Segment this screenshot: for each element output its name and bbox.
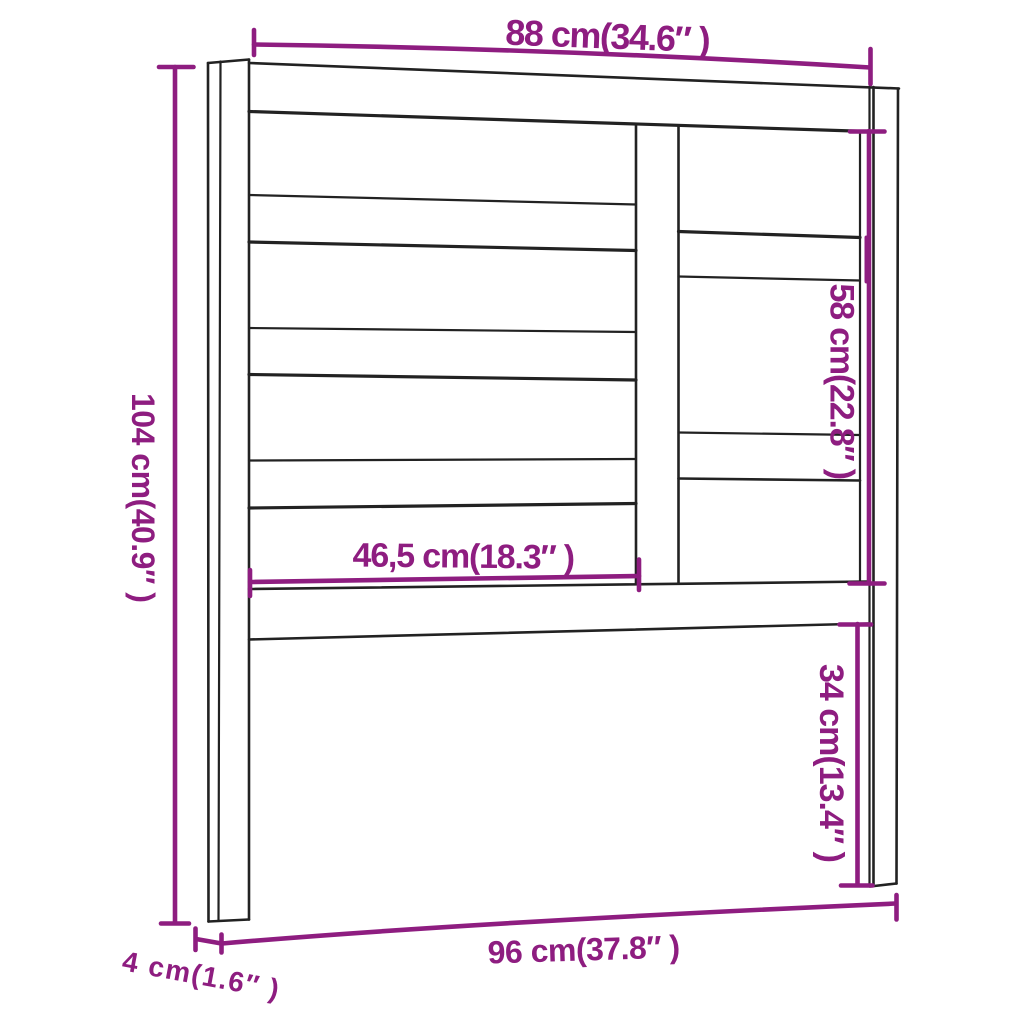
svg-text:4 cm(1.6″ ): 4 cm(1.6″ ) xyxy=(120,945,283,1005)
svg-text:46,5 cm(18.3″ ): 46,5 cm(18.3″ ) xyxy=(352,537,574,577)
svg-text:104 cm(40.9″ ): 104 cm(40.9″ ) xyxy=(125,393,161,602)
svg-text:88 cm(34.6″ ): 88 cm(34.6″ ) xyxy=(505,12,711,61)
svg-text:96 cm(37.8″ ): 96 cm(37.8″ ) xyxy=(487,928,680,970)
svg-text:34 cm(13.4″ ): 34 cm(13.4″ ) xyxy=(812,664,850,862)
svg-text:58 cm(22.8″ ): 58 cm(22.8″ ) xyxy=(823,284,861,479)
